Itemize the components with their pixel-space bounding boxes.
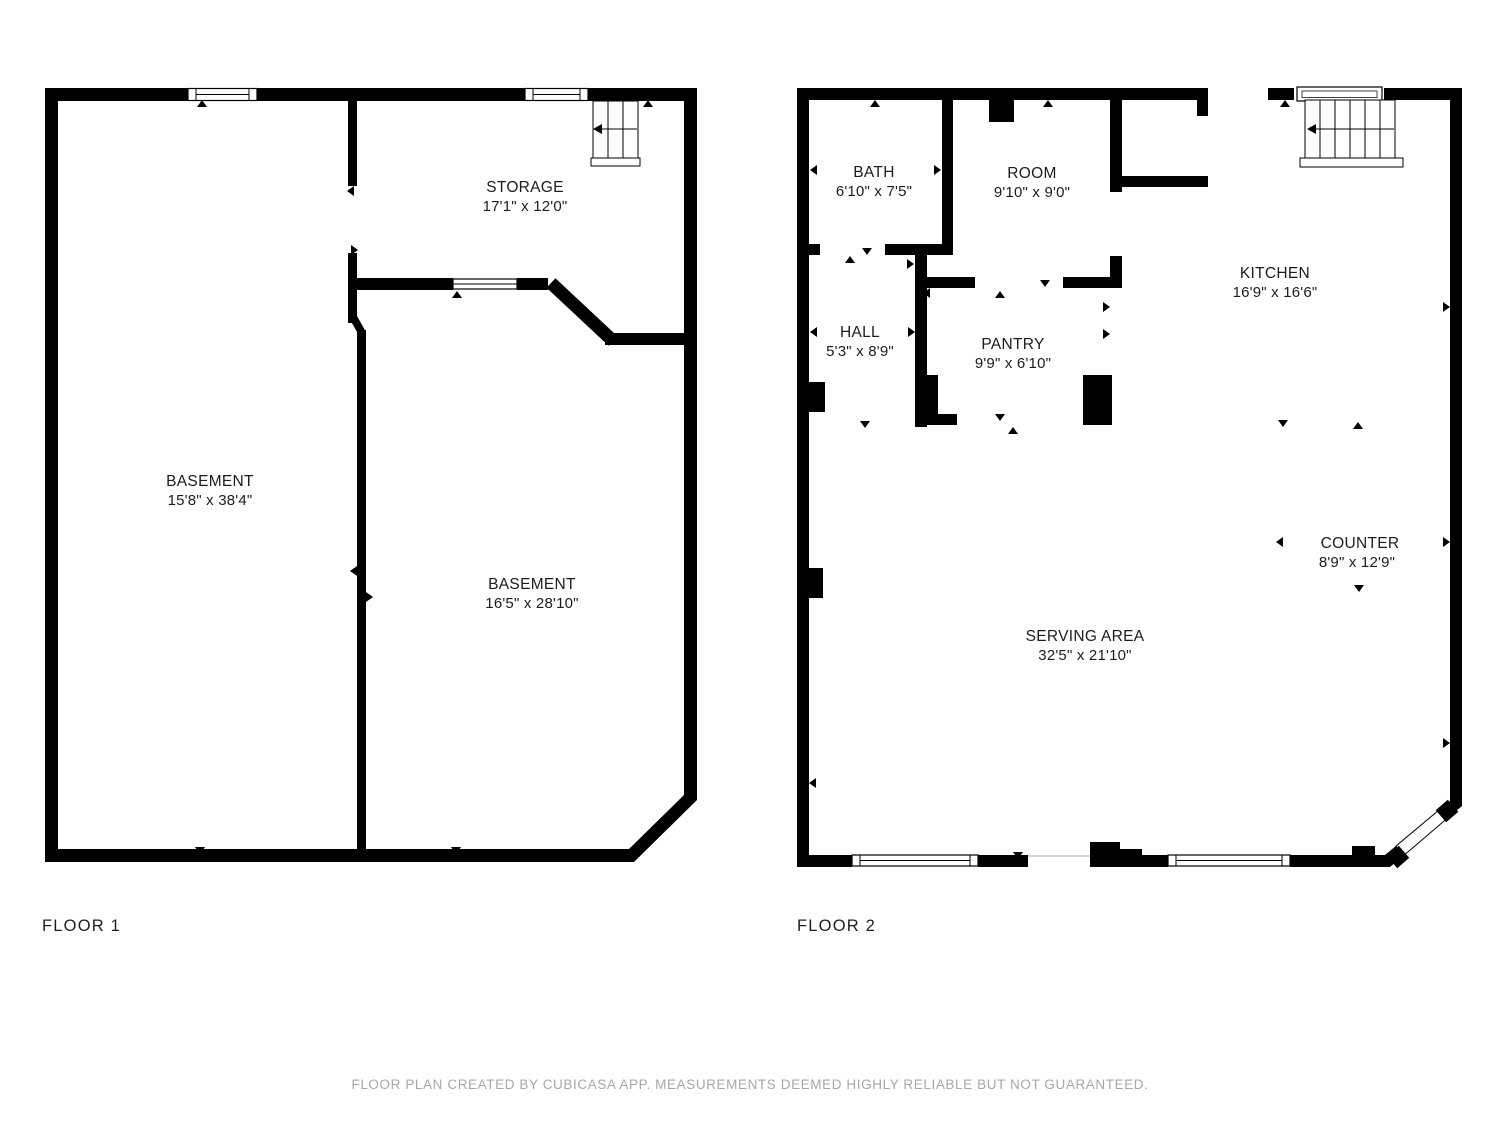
floor2-caption: FLOOR 2 (797, 917, 876, 935)
floor1-window-top-left (188, 87, 257, 102)
floor2-exterior-walls (797, 88, 1462, 867)
room-dims-pantry: 9'9" x 6'10" (975, 355, 1051, 372)
room-label-serving-area: SERVING AREA (1026, 628, 1145, 645)
floor2-door-markers (809, 100, 1450, 859)
floor2-interior-walls (806, 100, 1375, 867)
room-dims-room: 9'10" x 9'0" (994, 184, 1070, 201)
room-label-bath: BATH (853, 164, 894, 181)
room-dims-kitchen: 16'9" x 16'6" (1233, 284, 1318, 301)
room-dims-storage: 17'1" x 12'0" (483, 198, 568, 215)
floor1-staircase (591, 101, 640, 166)
floor1-window-top-right (525, 87, 588, 102)
room-label-basement-left: BASEMENT (166, 473, 254, 490)
floor1-exterior-walls (45, 88, 697, 862)
room-dims-basement-left: 15'8" x 38'4" (168, 492, 253, 509)
room-label-counter: COUNTER (1321, 535, 1400, 552)
room-dims-bath: 6'10" x 7'5" (836, 183, 912, 200)
room-label-kitchen: KITCHEN (1240, 265, 1310, 282)
floor1-door-markers (51, 100, 691, 854)
footer-disclaimer: FLOOR PLAN CREATED BY CUBICASA APP. MEAS… (0, 1077, 1500, 1092)
floor1-caption: FLOOR 1 (42, 917, 121, 935)
floorplan-drawing: STORAGE 17'1" x 12'0" BASEMENT 15'8" x 3… (0, 0, 1500, 1125)
floor1-plan: STORAGE 17'1" x 12'0" BASEMENT 15'8" x 3… (45, 87, 697, 862)
room-label-basement-right: BASEMENT (488, 576, 576, 593)
floor2-plan: BATH 6'10" x 7'5" ROOM 9'10" x 9'0" KITC… (797, 85, 1462, 868)
room-dims-basement-right: 16'5" x 28'10" (485, 595, 578, 612)
room-label-storage: STORAGE (486, 179, 564, 196)
room-label-hall: HALL (840, 324, 880, 341)
room-dims-serving-area: 32'5" x 21'10" (1038, 647, 1131, 664)
room-label-pantry: PANTRY (981, 336, 1044, 353)
floorplan-page: STORAGE 17'1" x 12'0" BASEMENT 15'8" x 3… (0, 0, 1500, 1125)
room-label-room: ROOM (1007, 165, 1056, 182)
room-dims-hall: 5'3" x 8'9" (826, 343, 894, 360)
floor1-window-storage (453, 278, 517, 290)
floor2-staircase (1300, 100, 1403, 167)
room-dims-counter: 8'9" x 12'9" (1319, 554, 1395, 571)
